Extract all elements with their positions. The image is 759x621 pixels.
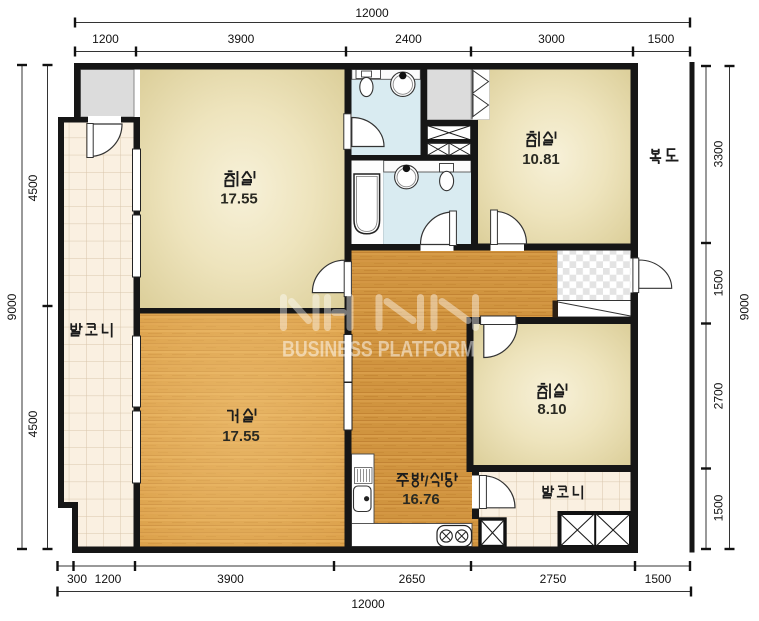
svg-text:9000: 9000 <box>738 293 752 320</box>
svg-text:17.55: 17.55 <box>222 428 260 445</box>
svg-text:3300: 3300 <box>712 140 726 167</box>
svg-text:8.10: 8.10 <box>537 401 566 418</box>
svg-text:2750: 2750 <box>540 572 567 586</box>
svg-text:2700: 2700 <box>712 382 726 409</box>
svg-text:1200: 1200 <box>95 572 122 586</box>
svg-text:4500: 4500 <box>26 174 40 201</box>
svg-text:BUSINESS PLATFORM: BUSINESS PLATFORM <box>282 337 475 362</box>
svg-text:1200: 1200 <box>92 32 119 46</box>
svg-text:1500: 1500 <box>712 494 726 521</box>
svg-text:4500: 4500 <box>26 410 40 437</box>
svg-text:12000: 12000 <box>351 597 385 611</box>
svg-text:2400: 2400 <box>395 32 422 46</box>
svg-text:10.81: 10.81 <box>522 151 560 168</box>
svg-text:1500: 1500 <box>645 572 672 586</box>
svg-text:1500: 1500 <box>712 269 726 296</box>
svg-text:17.55: 17.55 <box>220 191 258 208</box>
svg-text:16.76: 16.76 <box>402 491 440 508</box>
svg-text:12000: 12000 <box>355 6 389 20</box>
svg-text:300: 300 <box>67 572 87 586</box>
svg-text:3900: 3900 <box>228 32 255 46</box>
svg-text:2650: 2650 <box>399 572 426 586</box>
svg-text:3000: 3000 <box>538 32 565 46</box>
svg-text:/: / <box>424 475 428 491</box>
svg-text:1500: 1500 <box>648 32 675 46</box>
svg-text:3900: 3900 <box>217 572 244 586</box>
svg-text:9000: 9000 <box>5 293 19 320</box>
